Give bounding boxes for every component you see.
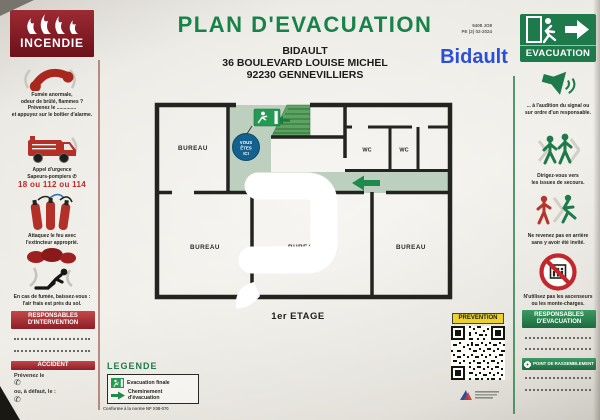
incendie-header: INCENDIE — [10, 10, 94, 57]
photo-corner-shadow — [0, 0, 34, 16]
prevention-banner: PREVENTION — [452, 313, 504, 324]
room-label-bureau-bottom-right: BUREAU — [396, 244, 426, 251]
qr-code — [451, 326, 505, 380]
legend-item-final-exit: Evacuation finale — [111, 377, 195, 389]
signal-line1: ... à l'audition du signal ou — [519, 103, 597, 110]
legend-item-label: Evacuation finale — [127, 380, 170, 386]
fire-truck-icon — [24, 128, 80, 166]
you-are-here-line3: ICI — [243, 151, 249, 156]
crouch-caption: En cas de fumée, baissez-vous : l'air fr… — [6, 294, 98, 307]
you-are-here-line2: ÊTES — [240, 146, 252, 151]
accident-banner: ACCIDENT — [11, 361, 95, 370]
right-column-divider — [513, 76, 515, 414]
room-label-bureau-bottom-left: BUREAU — [190, 244, 220, 251]
issues-line2: les issues de secours. — [519, 180, 597, 187]
room-label-wc-right: WC — [399, 148, 408, 154]
retour-line2: sans y avoir été invité. — [519, 240, 597, 247]
norm-note: Conforme à la norme NF X08-070 — [103, 406, 169, 411]
write-in-line — [525, 376, 591, 379]
write-in-line — [14, 337, 90, 340]
room-label-bureau-top-left: BUREAU — [178, 145, 208, 152]
responsables-intervention-banner: RESPONSABLES D'INTERVENTION — [11, 311, 95, 329]
write-in-line — [525, 388, 591, 391]
room-label-bureau-bottom-middle: BUREAU — [288, 244, 318, 251]
exit-running-man-arrow-icon — [523, 14, 593, 45]
document-reference-line2: PE (2) 02-2024 — [432, 29, 492, 35]
rassemblement-banner: POINT DE RASSEMBLEMENT — [522, 358, 596, 370]
fire-extinguisher-icon — [26, 191, 76, 233]
phone-handset-icon — [20, 61, 80, 91]
ascenseur-line1: N'utilisez pas les ascenseurs — [519, 294, 597, 301]
signal-line2: sur ordre d'un responsable. — [519, 110, 597, 117]
legend-box: Evacuation finale Cheminement d'évacuati… — [107, 374, 199, 404]
emergency-numbers: 18 ou 112 ou 114 — [6, 180, 98, 189]
write-in-line — [525, 336, 591, 339]
incendie-panel: INCENDIE Fumée anormale, odeur de brûlé,… — [4, 0, 100, 420]
smoke-alert-line4: et appuyez sur le boîtier d'alarme. — [6, 112, 98, 119]
signal-caption: ... à l'audition du signal ou sur ordre … — [519, 103, 597, 116]
manufacturer-logo — [456, 388, 504, 402]
brand-logo: Bidault — [428, 46, 520, 69]
issues-caption: Dirigez-vous vers les issues de secours. — [519, 173, 597, 186]
alarm-loudspeaker-icon — [538, 65, 578, 101]
walking-people-icon — [534, 131, 580, 171]
responsables-evacuation-banner: RESPONSABLES D'EVACUATION — [522, 310, 596, 328]
emergency-call-caption: Appel d'urgence Sapeurs-pompiers ✆ — [6, 167, 98, 180]
document-reference: 9408 JO8 PE (2) 02-2024 — [432, 23, 492, 34]
retour-line1: Ne revenez pas en arrière — [519, 233, 597, 240]
incendie-title: INCENDIE — [20, 36, 84, 50]
write-in-line — [14, 349, 90, 352]
legend-title: LEGENDE — [107, 361, 158, 371]
extinguisher-line2: l'extincteur approprié. — [6, 240, 98, 247]
crouch-line2: l'air frais est près du sol. — [6, 301, 98, 308]
evacuation-title: EVACUATION — [520, 45, 596, 61]
evacuation-header: EVACUATION — [520, 14, 596, 62]
legend-item-route: Cheminement d'évacuation — [111, 389, 195, 401]
route-arrow-icon — [111, 391, 125, 400]
crouch-under-smoke-icon — [24, 248, 78, 292]
photo-edge-shadow — [593, 0, 600, 420]
no-turning-back-icon — [533, 190, 581, 232]
floor-plan: VOUS ÊTES ICI BUREAU BUREAU BUREAU BUREA… — [150, 100, 460, 315]
floor-label: 1er ETAGE — [253, 311, 343, 322]
site-address-line1: 36 BOULEVARD LOUISE MICHEL — [150, 57, 460, 69]
ascenseur-caption: N'utilisez pas les ascenseurs ou les mon… — [519, 294, 597, 307]
extinguisher-caption: Attaquez le feu avec l'extincteur approp… — [6, 233, 98, 246]
assembly-point-icon — [524, 361, 531, 368]
exit-sign-icon — [254, 109, 280, 126]
write-in-line — [525, 347, 591, 350]
rassemblement-label: POINT DE RASSEMBLEMENT — [533, 360, 594, 368]
evacuation-panel: EVACUATION ... à l'audition du signal ou… — [518, 0, 598, 420]
room-label-wc-left: WC — [362, 148, 371, 154]
ascenseur-line2: ou les monte-charges. — [519, 301, 597, 308]
site-address-line2: 92230 GENNEVILLIERS — [150, 69, 460, 81]
site-address-block: BIDAULT 36 BOULEVARD LOUISE MICHEL 92230… — [150, 45, 460, 81]
site-name: BIDAULT — [150, 45, 460, 57]
crouch-line1: En cas de fumée, baissez-vous : — [6, 294, 98, 301]
smoke-alert-caption: Fumée anormale, odeur de brûlé, flammes … — [6, 92, 98, 118]
page-title: PLAN D'EVACUATION — [140, 12, 470, 38]
you-are-here-marker: VOUS ÊTES ICI — [233, 134, 260, 161]
you-are-here-line1: VOUS — [240, 140, 253, 145]
exit-sign-icon — [111, 378, 124, 388]
photo-corner-shadow — [0, 386, 20, 420]
retour-caption: Ne revenez pas en arrière sans y avoir é… — [519, 233, 597, 246]
legend-item-label: Cheminement d'évacuation — [128, 389, 195, 401]
no-elevator-icon — [537, 251, 579, 293]
